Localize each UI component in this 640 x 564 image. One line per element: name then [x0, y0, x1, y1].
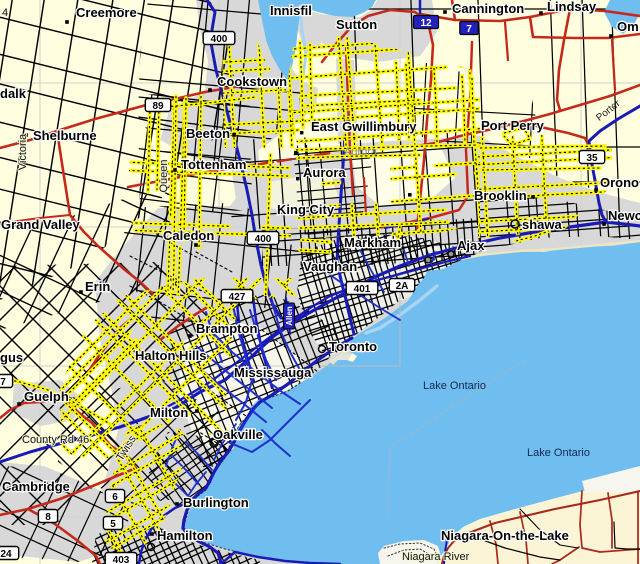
svg-text:5: 5: [110, 519, 116, 530]
svg-text:Halton Hills: Halton Hills: [135, 348, 207, 363]
svg-text:Shelburne: Shelburne: [33, 128, 97, 143]
svg-text:Victoria: Victoria: [17, 133, 29, 170]
svg-text:35: 35: [586, 153, 598, 164]
svg-text:Cambridge: Cambridge: [2, 479, 70, 494]
svg-text:Tottenham: Tottenham: [181, 157, 246, 172]
svg-text:Oakville: Oakville: [213, 427, 263, 442]
svg-text:2A: 2A: [396, 281, 409, 292]
svg-text:Brooklin: Brooklin: [474, 188, 527, 203]
svg-text:Sutton: Sutton: [336, 17, 377, 32]
svg-text:400: 400: [211, 34, 228, 45]
svg-text:Toronto: Toronto: [329, 339, 377, 354]
svg-text:County Rd 46: County Rd 46: [22, 434, 89, 446]
svg-text:Niagara River: Niagara River: [402, 551, 470, 563]
svg-text:12: 12: [420, 18, 432, 29]
svg-text:Erin: Erin: [85, 279, 110, 294]
svg-text:Lake Ontario: Lake Ontario: [527, 447, 590, 459]
svg-text:dalk: dalk: [0, 86, 27, 101]
svg-text:Om: Om: [617, 19, 639, 34]
svg-text:403: 403: [113, 555, 130, 564]
svg-text:Innisfil: Innisfil: [270, 3, 312, 18]
svg-text:Caledon: Caledon: [163, 228, 214, 243]
svg-text:Aurora: Aurora: [344, 146, 378, 158]
svg-text:427: 427: [229, 292, 246, 303]
svg-text:401: 401: [354, 284, 371, 295]
svg-text:Creemore: Creemore: [76, 5, 137, 20]
svg-text:Queen: Queen: [158, 159, 170, 192]
svg-text:Hamilton: Hamilton: [157, 528, 213, 543]
svg-text:King City: King City: [277, 202, 335, 217]
svg-text:Cookstown: Cookstown: [217, 74, 287, 89]
svg-text:Allen: Allen: [285, 306, 294, 326]
svg-text:Vaughan: Vaughan: [303, 259, 357, 274]
svg-text:gus: gus: [0, 350, 23, 365]
svg-text:400: 400: [255, 234, 272, 245]
svg-text:4: 4: [2, 7, 8, 19]
svg-text:Cannington: Cannington: [452, 1, 524, 16]
svg-text:shawa: shawa: [522, 217, 563, 232]
svg-text:Niagara-On-the-Lake: Niagara-On-the-Lake: [441, 528, 569, 543]
svg-text:Orono: Orono: [600, 175, 639, 190]
svg-text:89: 89: [152, 101, 164, 112]
svg-text:Guelph: Guelph: [24, 389, 69, 404]
svg-text:Port Perry: Port Perry: [481, 118, 545, 133]
svg-text:Markham: Markham: [344, 235, 401, 250]
svg-text:Lake Ontario: Lake Ontario: [423, 380, 486, 392]
svg-text:24: 24: [0, 549, 12, 560]
svg-text:Beeton: Beeton: [186, 126, 230, 141]
svg-text:6: 6: [112, 492, 118, 503]
svg-text:Grand Valley: Grand Valley: [1, 217, 81, 232]
svg-text:Burlington: Burlington: [183, 495, 249, 510]
svg-text:Milton: Milton: [150, 405, 188, 420]
svg-text:Ajax: Ajax: [457, 238, 485, 253]
svg-text:East Gwillimbury: East Gwillimbury: [311, 119, 417, 134]
svg-text:Aurora: Aurora: [303, 165, 346, 180]
svg-text:Lindsay: Lindsay: [547, 0, 597, 14]
svg-text:Brampton: Brampton: [196, 321, 257, 336]
svg-text:8: 8: [45, 512, 51, 523]
svg-text:7: 7: [466, 24, 472, 35]
svg-text:Newc: Newc: [608, 208, 640, 223]
svg-text:7: 7: [0, 377, 6, 388]
svg-text:Mississauga: Mississauga: [234, 365, 312, 380]
